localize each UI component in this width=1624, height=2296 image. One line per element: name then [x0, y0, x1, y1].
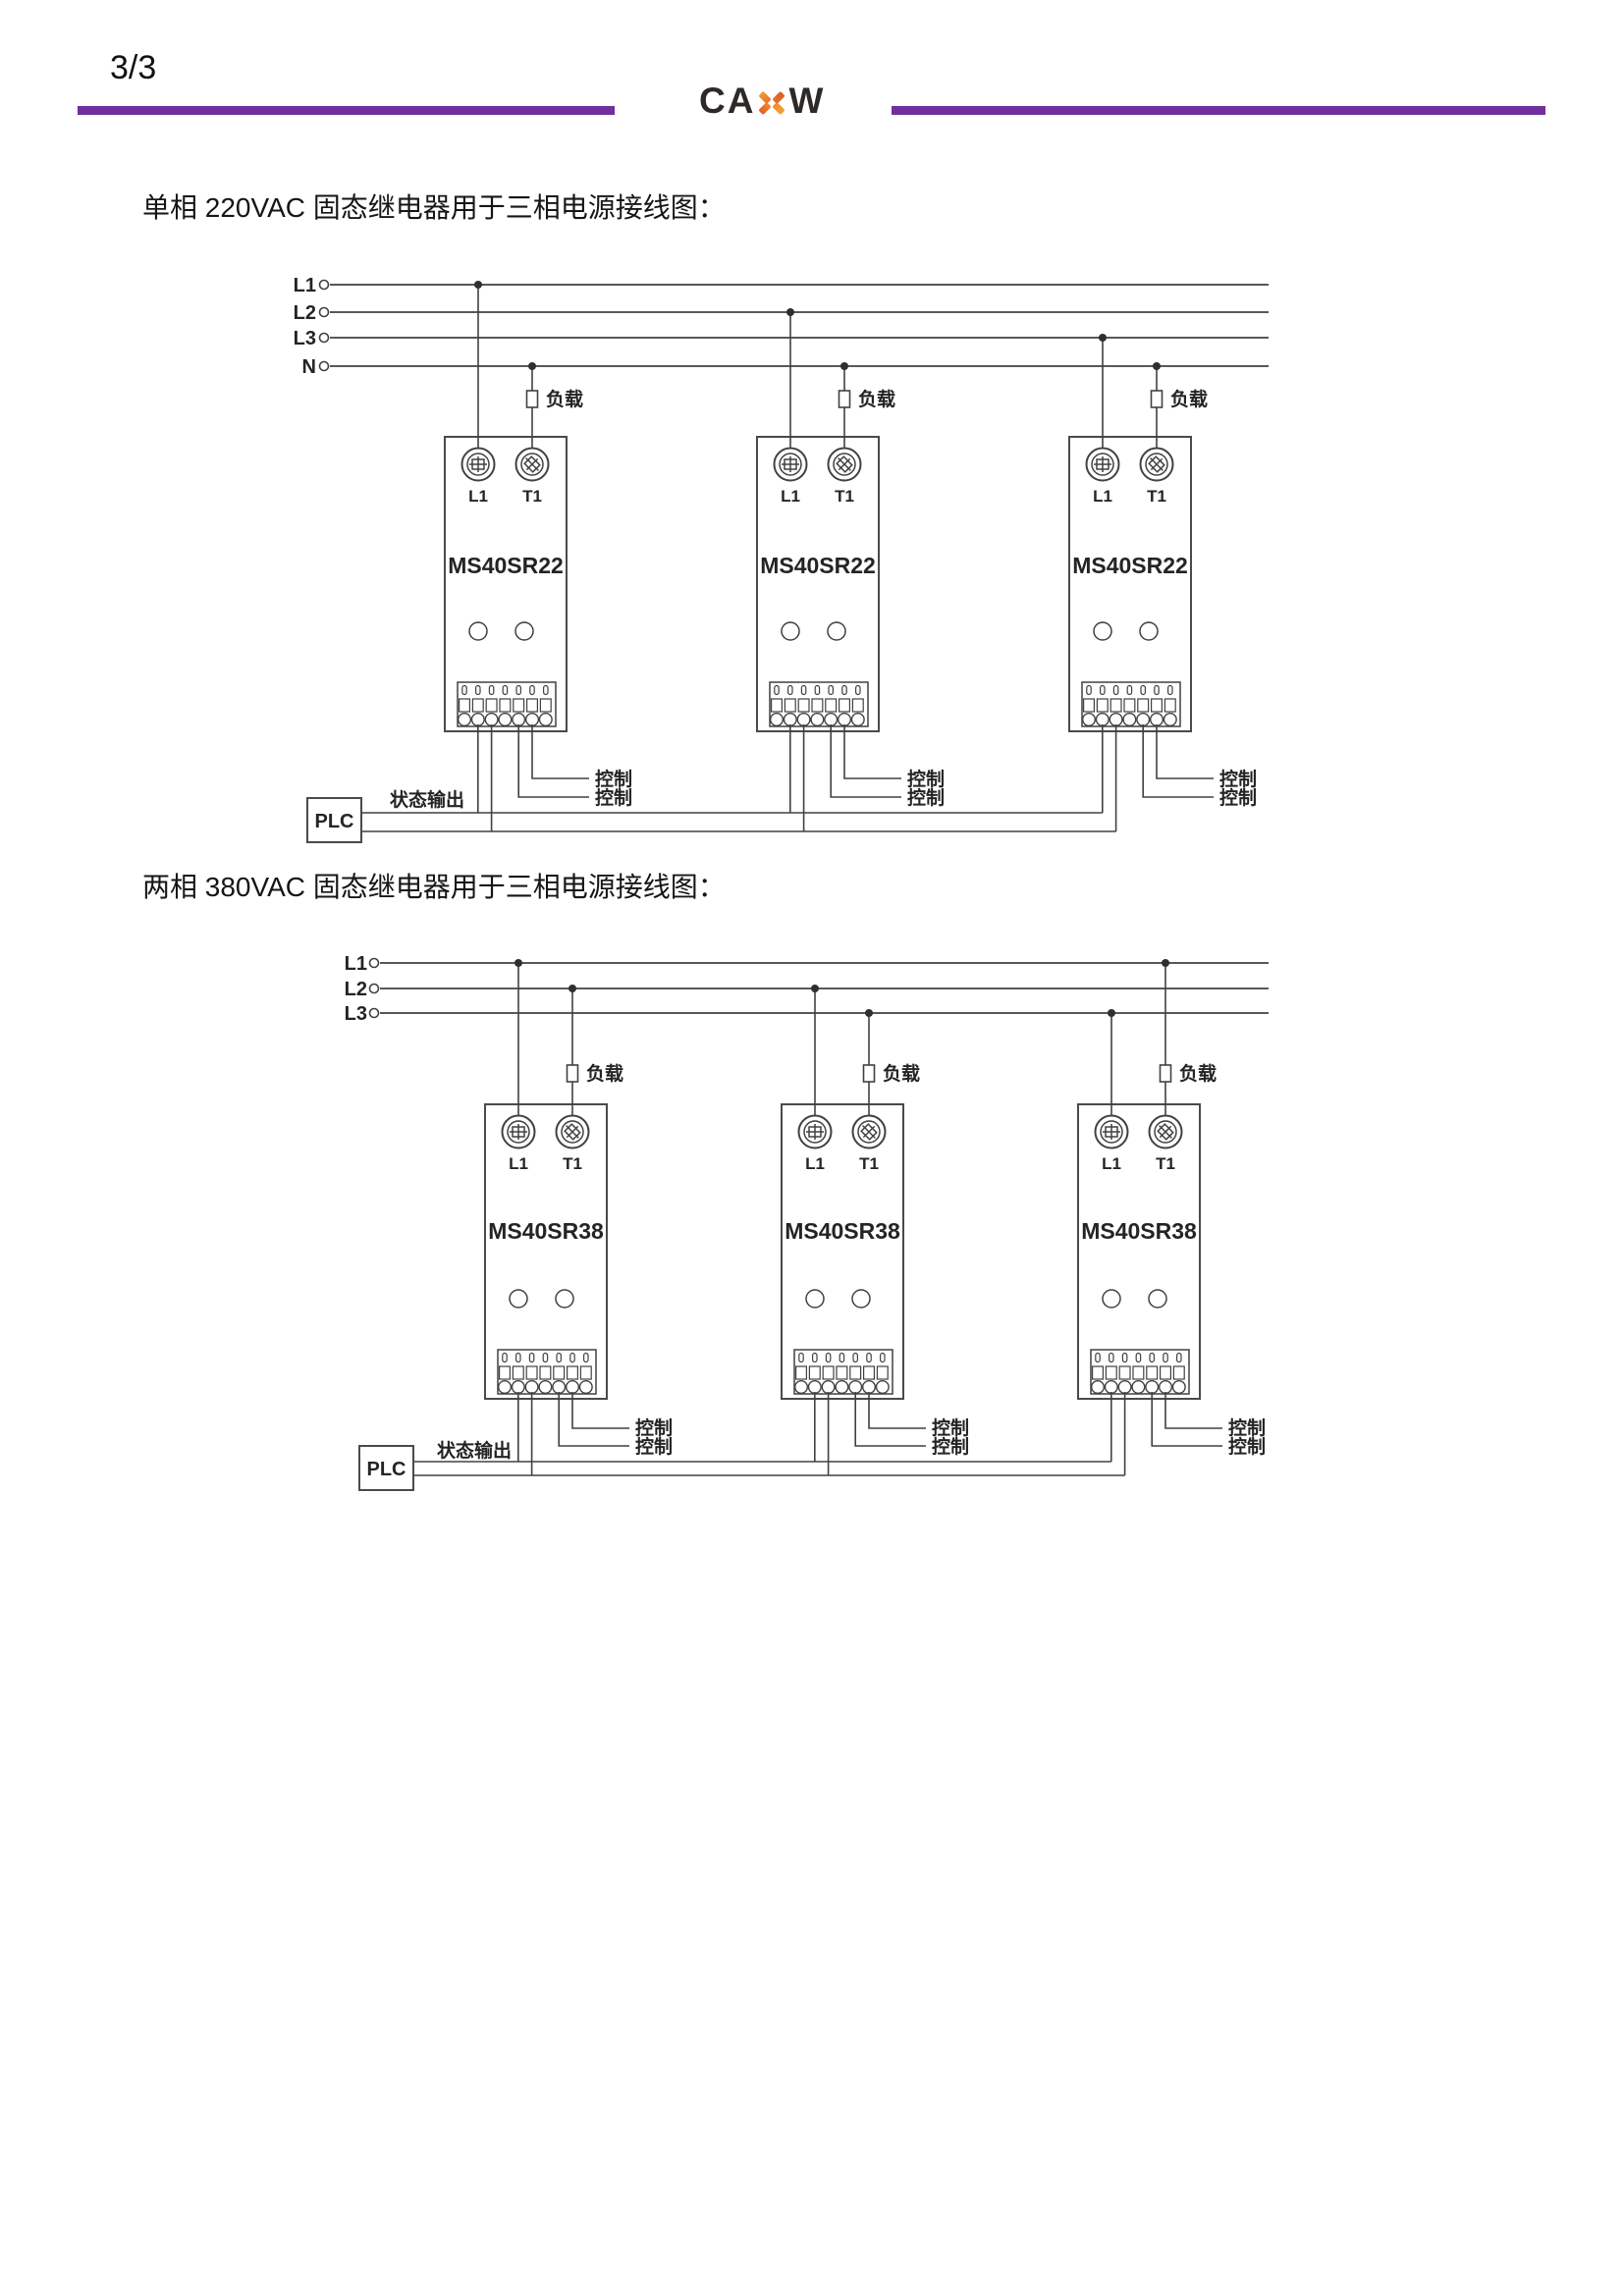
control-wire [855, 1392, 926, 1446]
relay-module-3 [1078, 1104, 1200, 1399]
bus-label: L2 [345, 979, 367, 1000]
junction-dot [514, 959, 522, 967]
bus-terminal-circle [370, 1009, 379, 1018]
junction-dot [474, 281, 482, 289]
bus-label: N [302, 356, 316, 378]
diagram2-wiring: L1 L2 L3 MS40SR38 MS40SR38 MS40SR38 负载 控… [324, 937, 1306, 1497]
load-label: 负载 [546, 388, 583, 410]
load-box [1161, 1065, 1171, 1082]
relay-model-label: MS40SR38 [785, 1218, 900, 1244]
page-number: 3/3 [110, 49, 156, 87]
x-arm-top-right [773, 90, 785, 103]
logo-text-right: W [788, 82, 825, 119]
control-label: 控制 [932, 1435, 969, 1458]
bus-label: L3 [294, 328, 316, 349]
bus-terminal-circle [370, 985, 379, 993]
junction-dot [786, 308, 794, 316]
relay-module-1 [485, 1104, 607, 1399]
x-arm-bottom-right [773, 101, 785, 114]
junction-dot [568, 985, 576, 992]
control-wire [518, 724, 589, 797]
load-label: 负载 [858, 388, 895, 410]
bus-terminal-circle [320, 308, 329, 317]
control-wire [559, 1392, 629, 1446]
control-label: 控制 [1219, 768, 1257, 790]
control-wire [1143, 724, 1214, 797]
diagram2-title: 两相 380VAC 固态继电器用于三相电源接线图： [142, 866, 726, 905]
control-wire [532, 724, 589, 778]
load-label: 负载 [883, 1062, 920, 1085]
control-label: 控制 [595, 768, 632, 790]
junction-dot [1162, 959, 1169, 967]
control-wire [1157, 724, 1214, 778]
document-page: 3/3 CA W 单相 220VAC 固态继电器用于三相电源接线图： 两相 38… [0, 0, 1624, 2296]
diagram1-bus-lines: L1 L2 L3 N [294, 275, 1269, 378]
plc-section: PLC 状态输出 [359, 1439, 1125, 1490]
control-label: 控制 [907, 786, 945, 809]
control-label: 控制 [1228, 1416, 1266, 1439]
relay-model-label: MS40SR38 [1081, 1218, 1197, 1244]
diagram1-title: 单相 220VAC 固态继电器用于三相电源接线图： [142, 187, 726, 226]
bus-label: L1 [294, 275, 316, 296]
status-output-label: 状态输出 [390, 788, 464, 811]
load-box [839, 391, 850, 407]
plc-section: PLC 状态输出 [307, 788, 1116, 842]
diagram1-wiring: L1 L2 L3 N MS40SR22 MS40SR22 MS40SR22 负载… [275, 260, 1296, 859]
logo-x-icon [759, 90, 785, 116]
load-label: 负载 [1170, 388, 1208, 410]
header-rule-left [78, 106, 615, 115]
load-box [527, 391, 538, 407]
control-label: 控制 [1219, 786, 1257, 809]
relay-module-2 [782, 1104, 903, 1399]
logo-text-left: CA [699, 82, 755, 119]
control-wire [831, 724, 901, 797]
relay-model-label: MS40SR22 [760, 553, 876, 578]
bus-terminal-circle [320, 281, 329, 290]
bus-terminal-circle [320, 362, 329, 371]
junction-dot [811, 985, 819, 992]
load-box [568, 1065, 578, 1082]
bus-terminal-circle [320, 334, 329, 343]
relay-model-label: MS40SR22 [1072, 553, 1188, 578]
bus-label: L3 [345, 1003, 367, 1025]
junction-dot [1099, 334, 1107, 342]
junction-dot [528, 362, 536, 370]
relay-module-3 [1069, 437, 1191, 731]
diagram2-bus-lines: L1 L2 L3 [345, 953, 1269, 1025]
control-label: 控制 [907, 768, 945, 790]
bus-label: L1 [345, 953, 367, 975]
junction-dot [865, 1009, 873, 1017]
relay-model-label: MS40SR38 [488, 1218, 604, 1244]
load-box [1152, 391, 1163, 407]
control-label: 控制 [595, 786, 632, 809]
plc-label: PLC [315, 811, 354, 832]
load-box [864, 1065, 875, 1082]
control-label: 控制 [1228, 1435, 1266, 1458]
load-label: 负载 [586, 1062, 623, 1085]
plc-label: PLC [367, 1459, 406, 1480]
junction-dot [840, 362, 848, 370]
relay-module-1 [445, 437, 567, 731]
junction-dot [1108, 1009, 1115, 1017]
status-output-label: 状态输出 [437, 1439, 512, 1462]
junction-dot [1153, 362, 1161, 370]
x-arm-bottom-left [759, 101, 772, 114]
control-label: 控制 [932, 1416, 969, 1439]
control-wire [844, 724, 901, 778]
bus-terminal-circle [370, 959, 379, 968]
control-label: 控制 [635, 1435, 673, 1458]
control-wire [1152, 1392, 1222, 1446]
caxw-logo: CA W [699, 82, 825, 119]
control-label: 控制 [635, 1416, 673, 1439]
relay-model-label: MS40SR22 [448, 553, 564, 578]
load-label: 负载 [1179, 1062, 1217, 1085]
header-rule-right [892, 106, 1545, 115]
bus-label: L2 [294, 302, 316, 324]
relay-module-2 [757, 437, 879, 731]
